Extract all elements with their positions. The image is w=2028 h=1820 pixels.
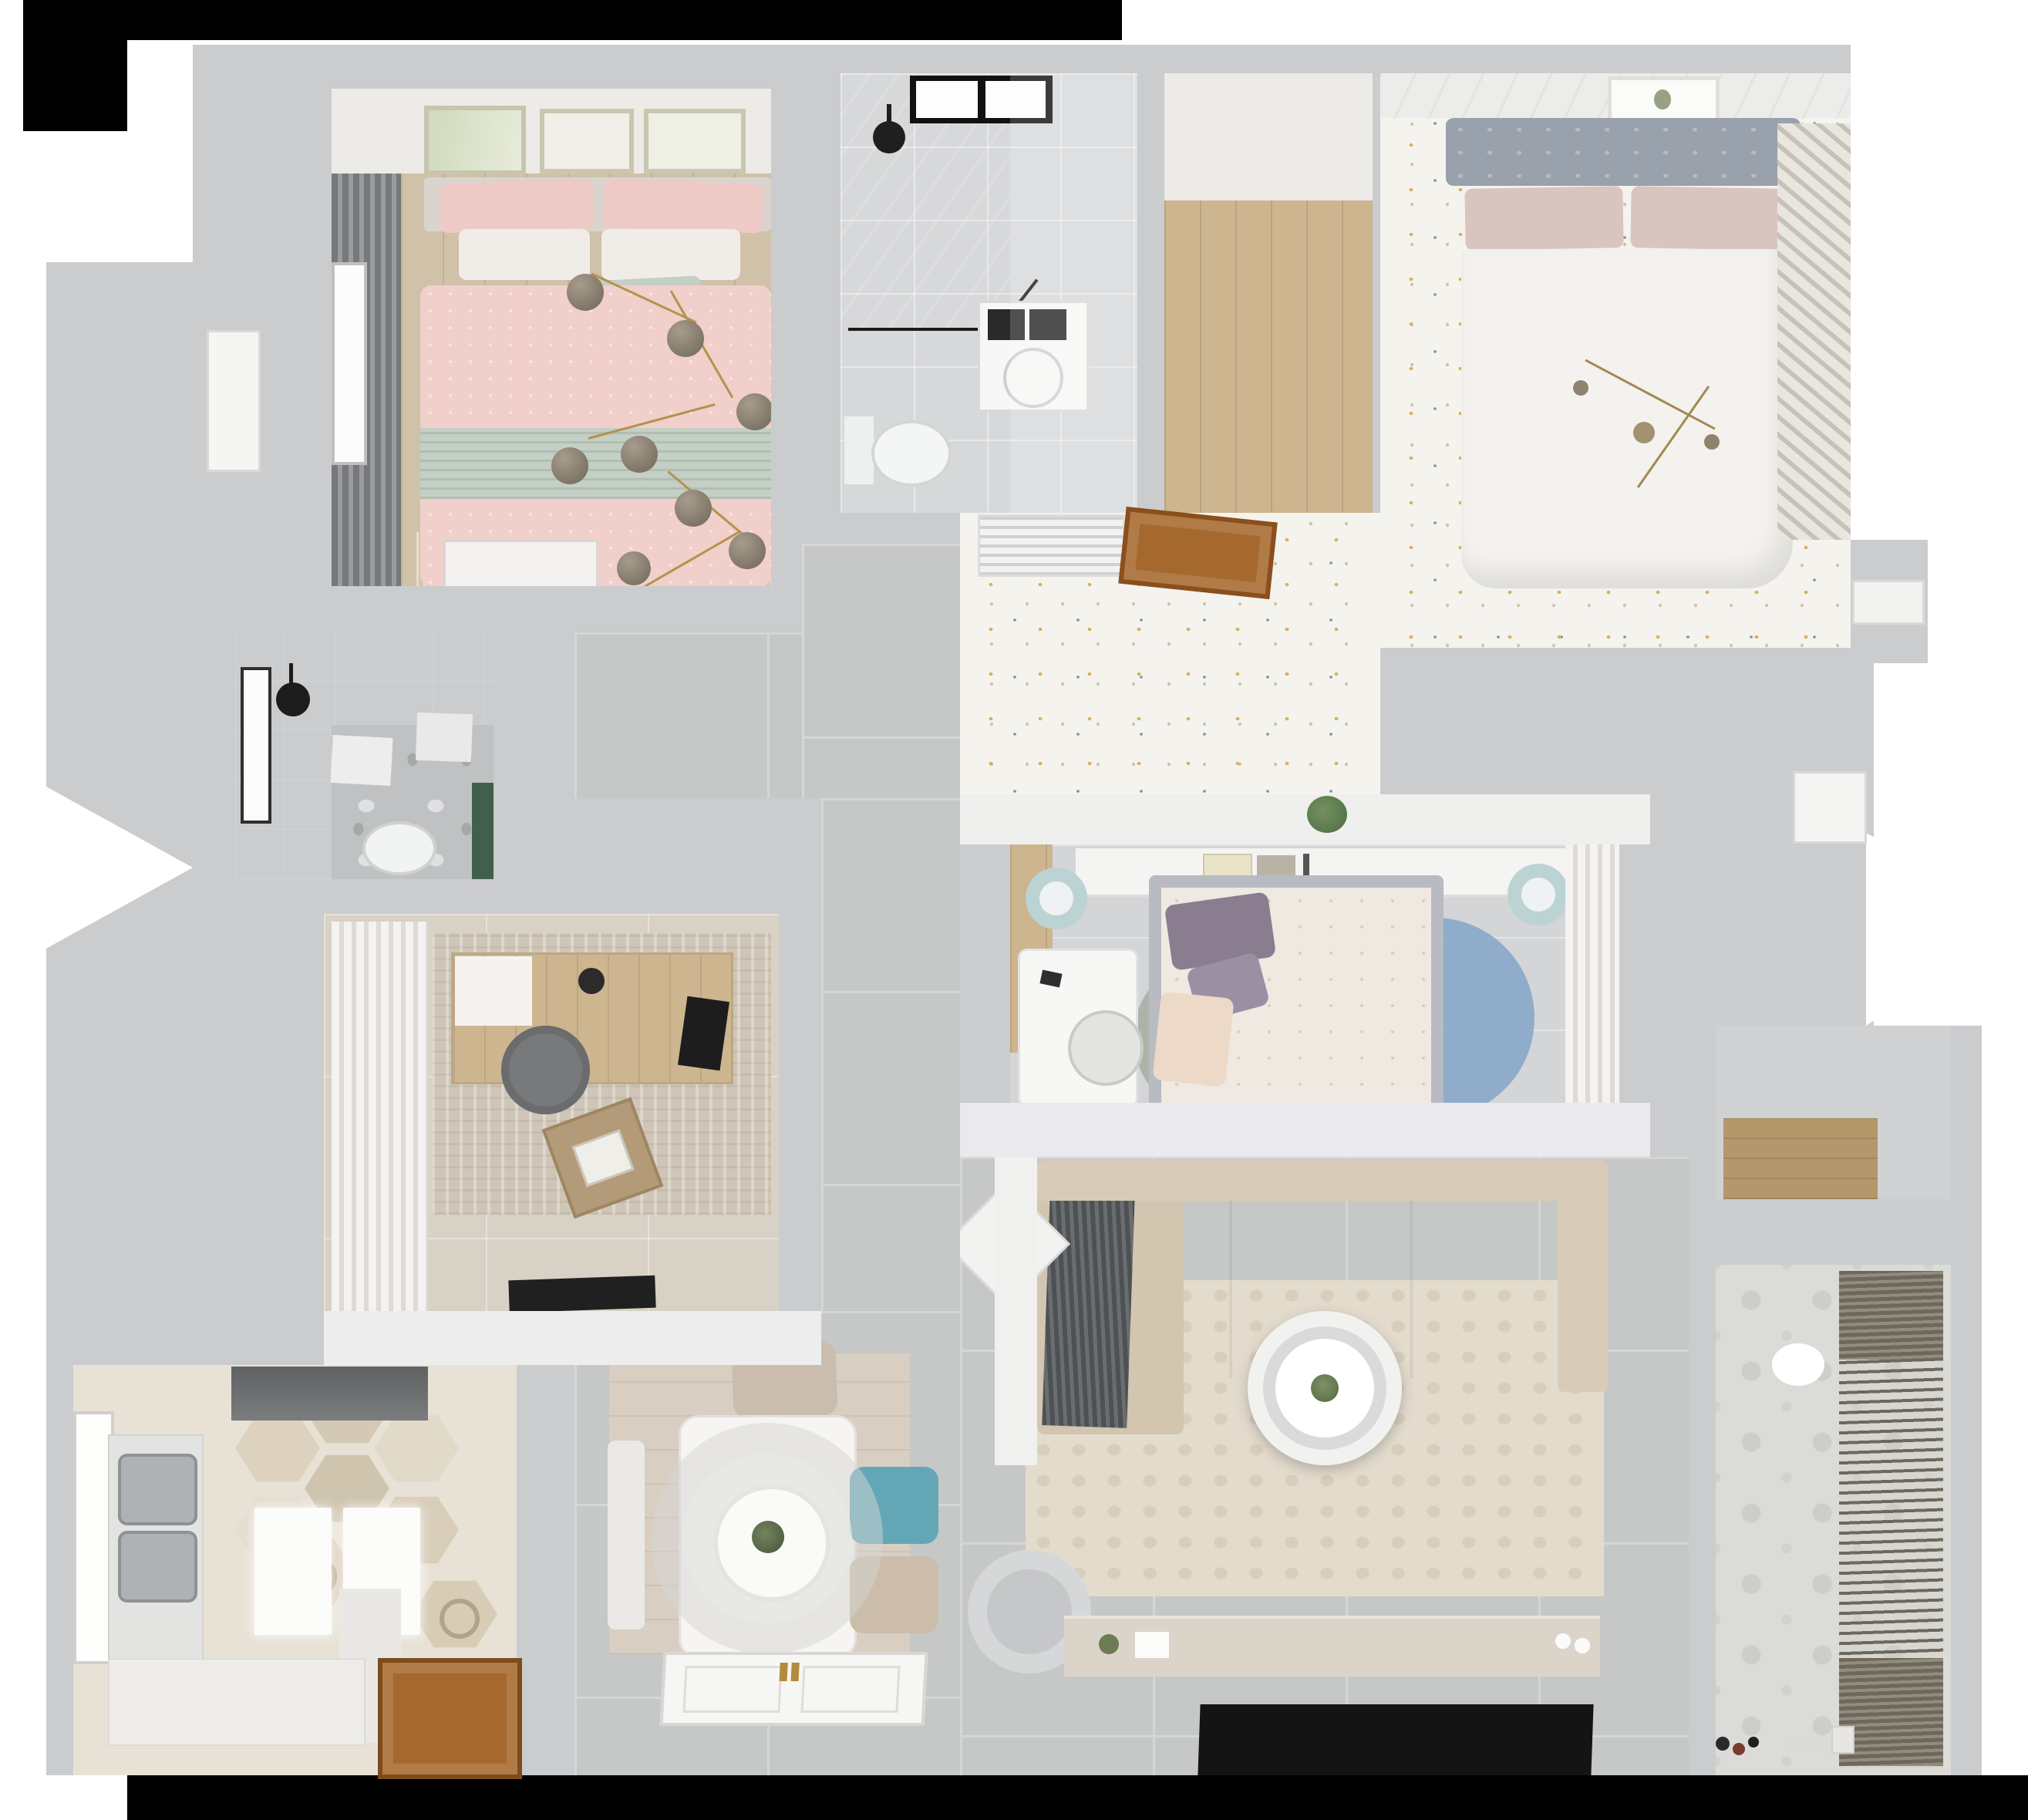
bedroom1-sage-runner [420,428,771,499]
toilet-tank [844,416,874,484]
entry-door-leaf [659,1652,928,1726]
mask-bottom-strip [127,1775,2028,1820]
chandelier-center-icon [1633,422,1655,443]
art-frame-script-icon [540,109,634,174]
room-bathroom-1 [841,73,1137,513]
art-frame-leaf-icon [424,106,526,175]
art-frame-botanical-icon [644,109,746,174]
hex-motif-ring-icon [440,1599,480,1639]
open-door-leaf-wood [1118,507,1277,599]
entry-door-molding [682,1666,782,1713]
entry-door-molding [800,1666,900,1713]
mask-top-strip [23,0,1122,40]
chandelier-globe-icon [675,490,712,527]
stool-teal-left-top [1039,881,1073,915]
drying-blinds-top-block [1839,1271,1943,1360]
armchair-gray-seat [987,1569,1072,1654]
tv-panel [1198,1704,1593,1775]
room-living [960,1157,1689,1775]
chandelier-globe-icon [617,551,651,585]
exterior-notch-right-mid [1874,663,2028,1026]
hex-tile-icon [374,1411,459,1485]
door-handle-icon [780,1663,788,1681]
pillow-pink-right [602,178,764,233]
toy-box-icon [1831,1726,1855,1754]
wall-study-bottom [324,1311,821,1365]
room-walkin-closet [1164,73,1373,513]
sink-basin-icon [118,1454,197,1525]
kitchen-fridge [231,1367,428,1421]
shower-arm-icon [289,663,293,685]
room-kitchen [73,1365,517,1775]
kitchen-white-panel [254,1508,332,1635]
sofa-armrest-right [1558,1161,1608,1392]
bathroom2-window [241,667,271,824]
bedroom2-louver-wardrobe [1777,123,1851,540]
bedroom1-window [332,262,367,465]
coffee-table-plant-icon [1311,1374,1339,1402]
chandelier-globe-icon [1704,434,1720,450]
corridor-top-right [802,544,960,798]
toy-mat-icon [1789,1739,1824,1746]
exterior-notch-right-top [1928,540,2028,663]
desk-side-chair-white [455,956,532,1026]
chandelier-globe-icon [621,436,658,473]
console-decor-mug-icon [1554,1632,1572,1650]
room-bedroom-2 [1380,73,1851,648]
door-leaf-left-white [207,330,261,472]
hex-tile-motif-icon [413,1577,497,1651]
utility-wood-shelf [1723,1118,1878,1199]
sink-basin-icon [118,1531,197,1603]
kitchen-door-wood [378,1658,522,1779]
bedroom3-wardrobe-sheer [1565,844,1619,1103]
study-doormat-black [508,1276,655,1311]
pillow-cream [1152,991,1235,1087]
room-bedroom-3 [1010,844,1619,1103]
bedroom2-duvet [1461,249,1793,588]
door-handle-icon [791,1663,800,1681]
desk-lamp-icon [578,968,605,994]
living-partition-wall [995,1157,1037,1465]
desk-chair [1068,1010,1144,1086]
corridor-top-left [574,632,802,798]
bathroom1-light-overlay [1010,73,1137,513]
room-dining [574,1311,960,1775]
wall-utility-balcony [1716,1199,1951,1265]
floor-plan-canvas [0,0,2028,1820]
room-study [324,914,779,1311]
sphere-lamp-icon [1772,1343,1824,1386]
stool-teal-right-top [1521,878,1555,912]
bathroom1-window-pane [916,81,978,118]
half-wall-partition [960,794,1650,844]
chandelier-globe-icon [567,274,604,311]
chandelier-globe-icon [736,393,771,430]
kitchen-counter-bottom [108,1658,366,1746]
plant-icon [1307,796,1347,833]
bedroom2-headboard [1446,118,1801,186]
toilet-bowl [871,420,952,487]
study-curtains [332,922,428,1311]
study-chair-gray [501,1026,590,1114]
shower-head-icon [276,682,310,716]
room-utility-niche [1716,1026,1951,1199]
green-accent-cabinet [472,783,494,879]
corridor-mid [821,798,960,1311]
room-vestibule [960,513,1380,794]
tv-console [1064,1616,1600,1677]
toy-icon [1733,1743,1745,1755]
hex-tile-icon [235,1411,320,1485]
toy-icon [1748,1737,1759,1748]
pillow-pink-left [439,179,595,234]
bedroom2-pillow-left [1464,186,1623,251]
mask-top-left-block [23,23,127,131]
shower-head-icon [873,121,905,153]
bedroom1-dresser [443,540,598,586]
chandelier-globe-icon [729,532,766,569]
pendant-plant-icon [752,1521,784,1553]
bedroom2-pillow-right [1630,186,1785,250]
art-plant-dot-icon [1654,89,1671,110]
room-bedroom-1 [332,89,771,586]
sofa-back [1037,1161,1608,1201]
door-leaf-right-white [1793,771,1867,844]
ac-vent-grille-icon [978,514,1125,577]
console-decor-box-icon [1134,1630,1171,1660]
toy-icon [1716,1737,1730,1751]
room-balcony [1716,1265,1951,1775]
console-decor-plant-icon [1099,1634,1119,1654]
drying-blinds-bottom-block [1839,1658,1943,1766]
toilet-bowl [362,821,436,875]
closet-oak-floor [1164,201,1373,513]
pillow-white-right [601,229,740,280]
towel-white [416,713,473,762]
chandelier-globe-icon [667,320,704,357]
chandelier-globe-icon [551,447,588,484]
wall-bedroom3-living [960,1103,1650,1157]
dining-bench [608,1441,645,1630]
closet-ceiling-band [1164,73,1373,201]
pouf-laptop-icon [572,1129,635,1187]
pillow-white-left [459,229,590,280]
room-bathroom-2 [235,632,494,879]
console-decor-mug-icon [1573,1636,1592,1655]
bath-mat-white [330,735,392,786]
chandelier-globe-icon [1573,380,1588,396]
door-leaf-hall-step [1852,580,1925,625]
